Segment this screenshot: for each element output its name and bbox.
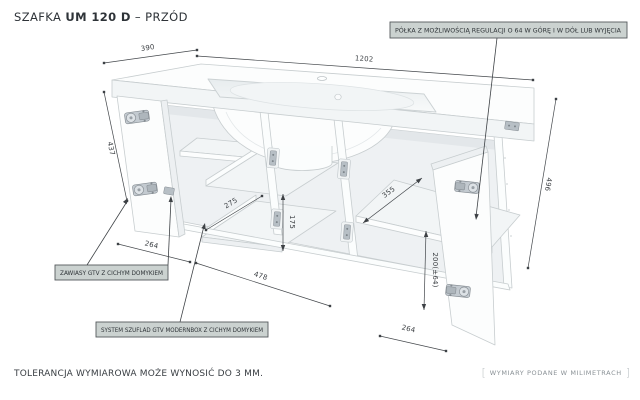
dim-390: 390 xyxy=(140,43,155,53)
page-title: SZAFKA UM 120 D – PRZÓD xyxy=(14,10,188,24)
bracket-left: [ xyxy=(481,367,485,378)
tolerance-note: TOLERANCJA WYMIAROWA MOŻE WYNOSIĆ DO 3 M… xyxy=(14,369,263,379)
drawer-runner-icon xyxy=(340,222,353,243)
shelf-note-label: PÓŁKA Z MOŻLIWOŚCIĄ REGULACJI O 64 W GÓR… xyxy=(395,26,622,35)
drawers-note-label: SYSTEM SZUFLAD GTV MODERNBOX Z CICHYM DO… xyxy=(101,327,263,334)
dim-175: 175 xyxy=(288,215,296,229)
title-model: UM 120 D xyxy=(65,10,131,24)
faucet-hole xyxy=(317,77,326,81)
drawer-runner-icon xyxy=(270,209,283,230)
cabinet-drawing: 390 1202 437 264 275 175 478 xyxy=(0,0,640,400)
dim-200: 200(±64) xyxy=(431,252,439,287)
drawer-runner-icon xyxy=(337,159,350,180)
hinge-plate-icon xyxy=(163,187,174,196)
technical-sheet: { "title": { "prefix": "SZAFKA ", "model… xyxy=(0,0,640,400)
hinge-plate-icon xyxy=(505,121,520,131)
hinges-note-label: ZAWIASY GTV Z CICHYM DOMYKIEM xyxy=(60,270,163,277)
dim-264-right: 264 xyxy=(401,324,417,335)
dim-264-left: 264 xyxy=(144,239,160,250)
dim-496: 496 xyxy=(543,177,553,192)
drain-pipe xyxy=(272,146,332,171)
units-note-label: WYMIARY PODANE W MILIMETRACH xyxy=(490,369,622,377)
drawer-runner-icon xyxy=(266,148,279,169)
bracket-right: ] xyxy=(626,367,630,378)
title-suffix: – PRZÓD xyxy=(131,10,188,24)
dim-478: 478 xyxy=(253,270,269,282)
dim-1202: 1202 xyxy=(355,54,374,63)
units-note: [ WYMIARY PODANE W MILIMETRACH ] xyxy=(481,367,630,378)
dim-437: 437 xyxy=(106,141,117,156)
title-prefix: SZAFKA xyxy=(14,10,65,24)
drain-hole xyxy=(335,94,341,100)
